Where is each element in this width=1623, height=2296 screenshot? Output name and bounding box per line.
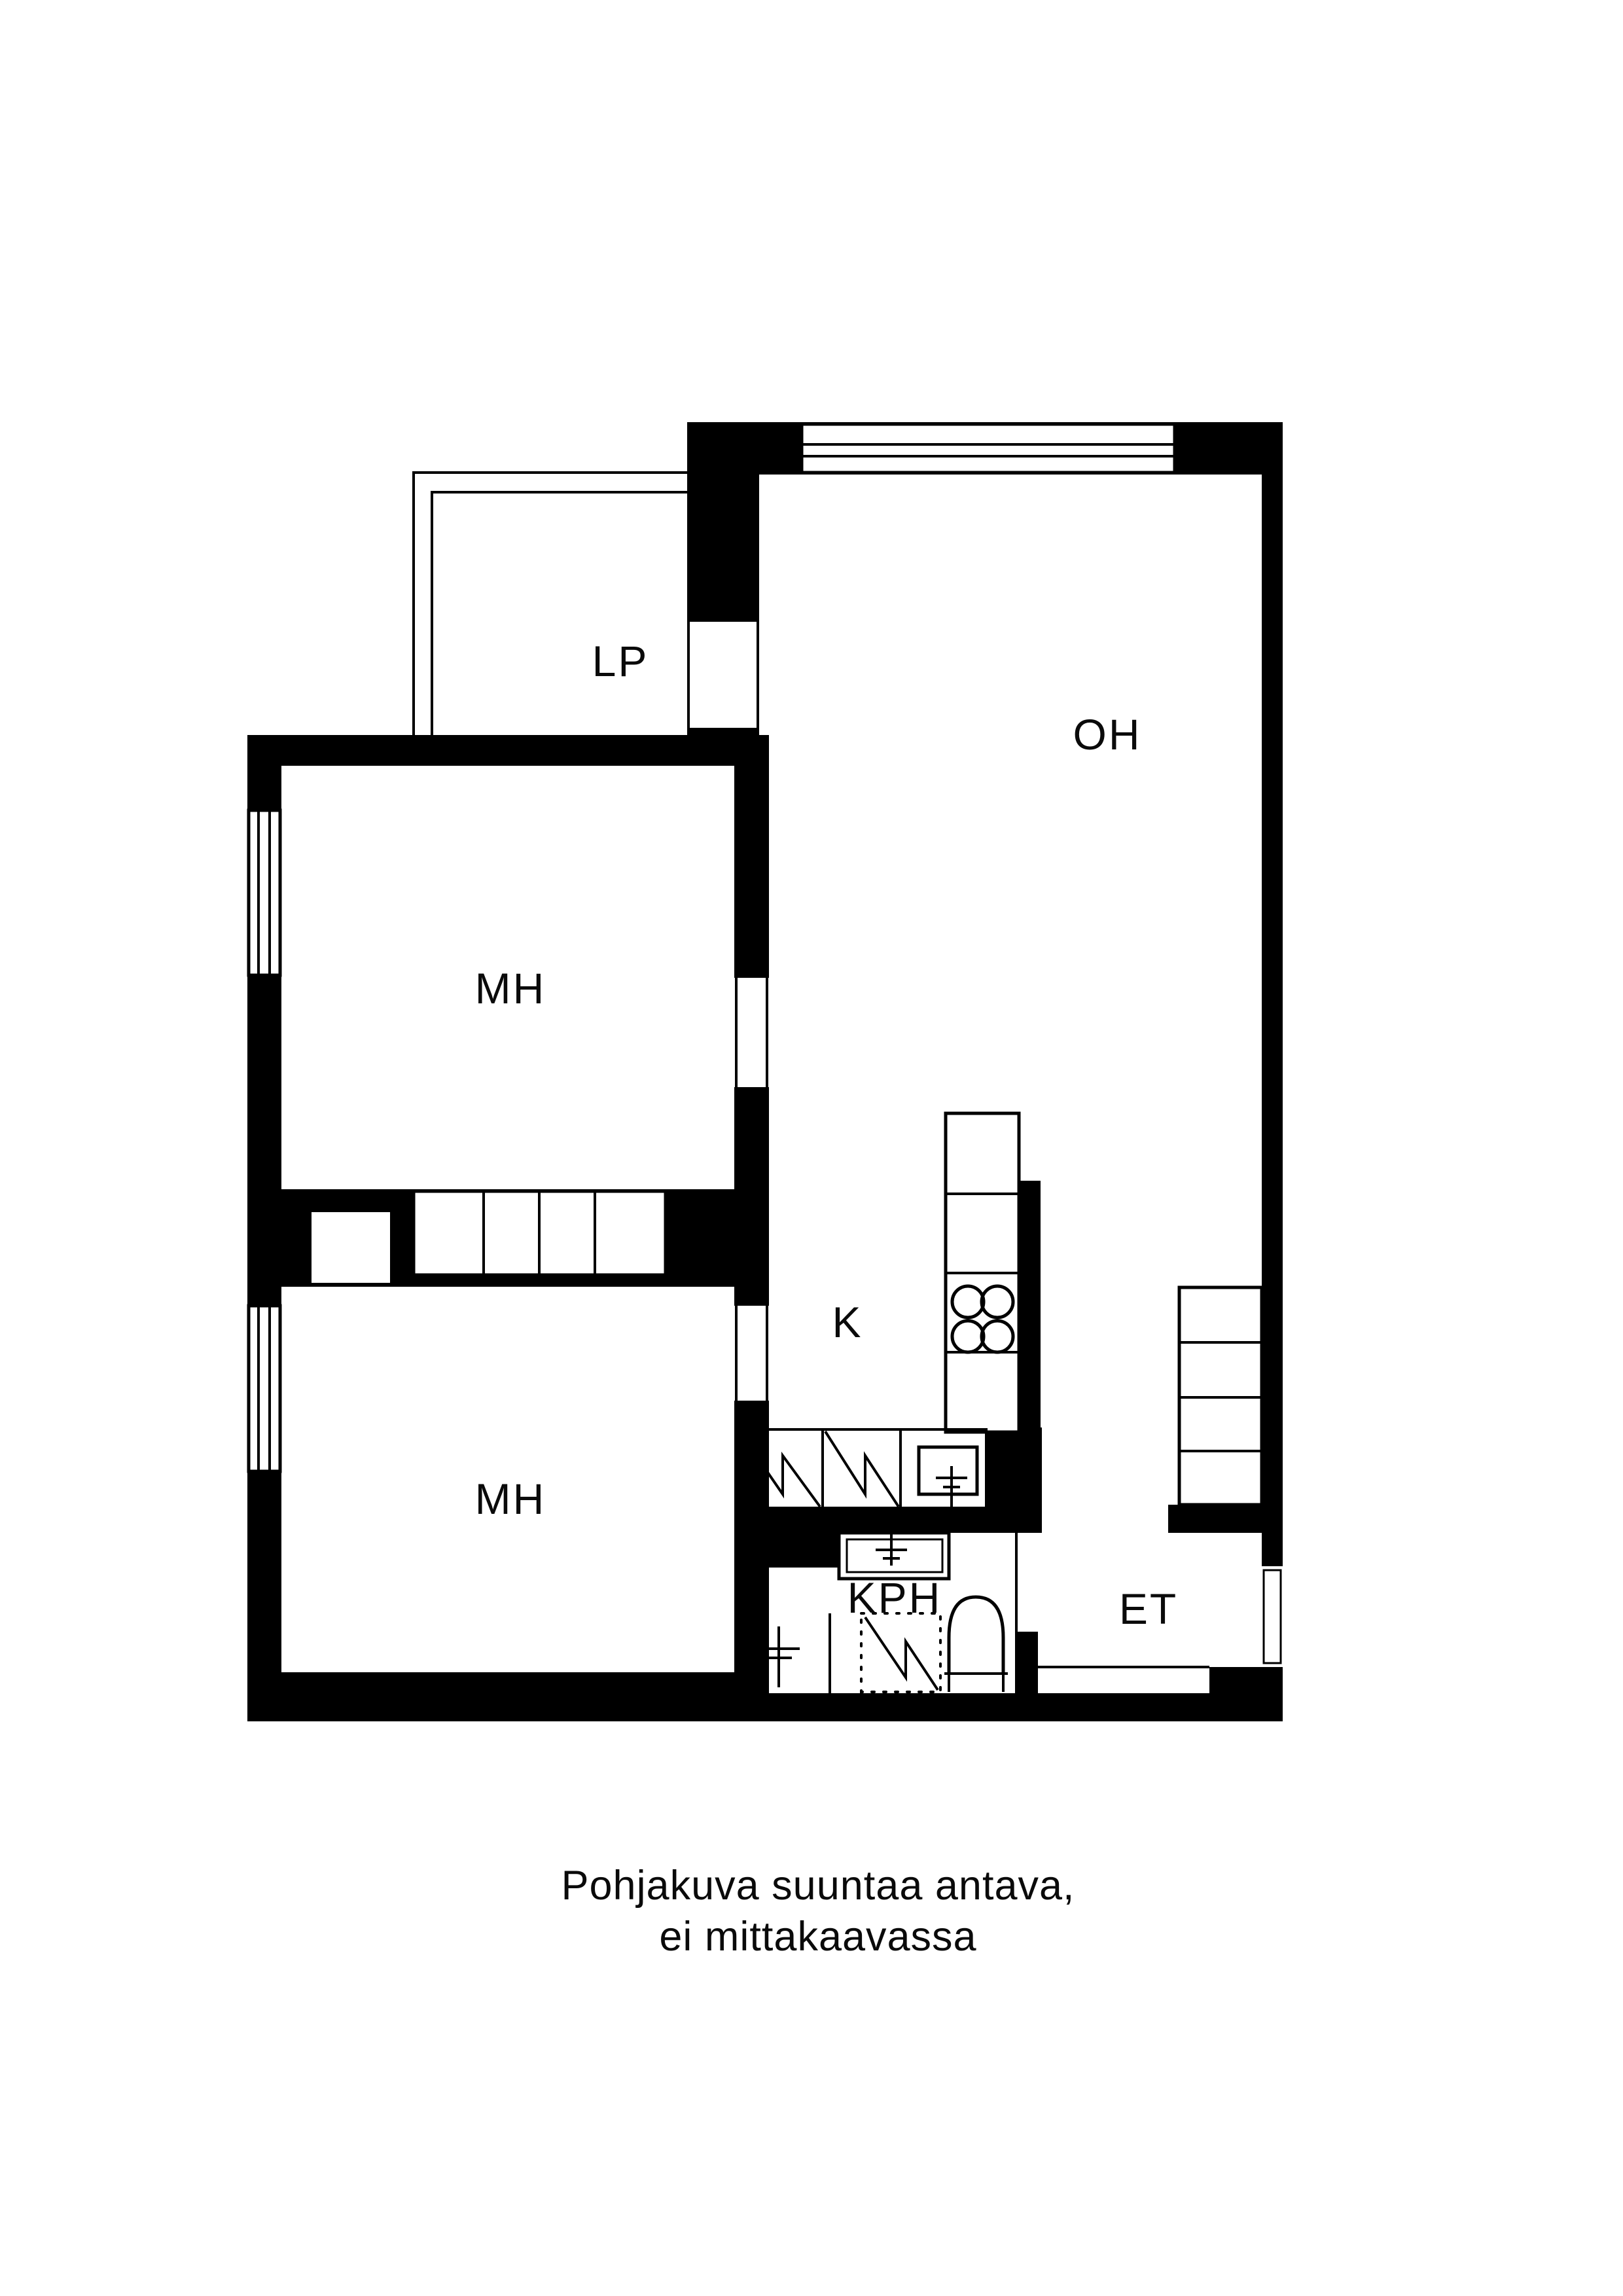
wall-kph-door-side [1016, 1632, 1038, 1693]
room-labels: LP OH MH MH K KPH ET [475, 637, 1179, 1633]
caption-line-2: ei mittakaavassa [659, 1914, 976, 1960]
floor-plan-page: LP OH MH MH K KPH ET Pohjakuva suuntaa a… [0, 0, 1623, 2296]
wall-kph-top-left [734, 1509, 839, 1568]
wall-under-wardrobe [1168, 1505, 1262, 1533]
wall-bottom-kph-et [737, 1693, 1209, 1721]
wall-bottom-right-corner [1209, 1667, 1283, 1721]
cabinet-zigzag-icon-2 [825, 1431, 899, 1507]
washbasin-inner [847, 1539, 942, 1572]
room-label-oh: OH [1073, 710, 1142, 759]
room-label-mh-upper: MH [475, 964, 546, 1013]
bedroom-lower-door-opening [734, 1306, 769, 1401]
balcony-glazing [414, 473, 688, 735]
room-label-mh-lower: MH [475, 1475, 546, 1523]
wall-spine-1 [734, 766, 769, 978]
toilet-icon [944, 1597, 1008, 1692]
balcony-door-opening [687, 622, 759, 728]
wall-bottom-mh [247, 1672, 737, 1721]
wall-kph-top-band [839, 1509, 1042, 1533]
room-label-lp: LP [592, 637, 649, 685]
washing-machine-reservation [861, 1613, 940, 1692]
front-door-opening [1262, 1566, 1283, 1667]
bedroom-upper-window [249, 810, 280, 975]
wall-lp-oh [687, 466, 759, 622]
kitchen-fixtures [737, 1113, 1019, 1510]
balcony-inner-line [432, 492, 688, 735]
wall-kitchen-stub [1018, 1181, 1041, 1427]
wall-spine-2 [734, 1087, 769, 1306]
living-room-window [802, 424, 1175, 473]
wall-kitchen-kph-chunk [986, 1427, 1042, 1509]
cabinet-row [737, 1429, 986, 1508]
closet-niche [312, 1212, 390, 1284]
kitchen-sink-tap-icon [936, 1466, 967, 1510]
bedroom-upper-door-opening [734, 978, 769, 1087]
caption-line-1: Pohjakuva suuntaa antava, [561, 1863, 1075, 1909]
room-label-kph: KPH [847, 1573, 942, 1622]
caption: Pohjakuva suuntaa antava, ei mittakaavas… [561, 1863, 1075, 1960]
room-label-et: ET [1119, 1585, 1178, 1633]
wall-right [1262, 422, 1283, 1566]
room-label-k: K [832, 1298, 863, 1346]
balcony-outer-line [414, 473, 688, 735]
floor-plan-drawing: LP OH MH MH K KPH ET Pohjakuva suuntaa a… [0, 0, 1623, 2296]
bedroom-lower-window [249, 1306, 280, 1471]
wall-mh-top [247, 735, 769, 766]
